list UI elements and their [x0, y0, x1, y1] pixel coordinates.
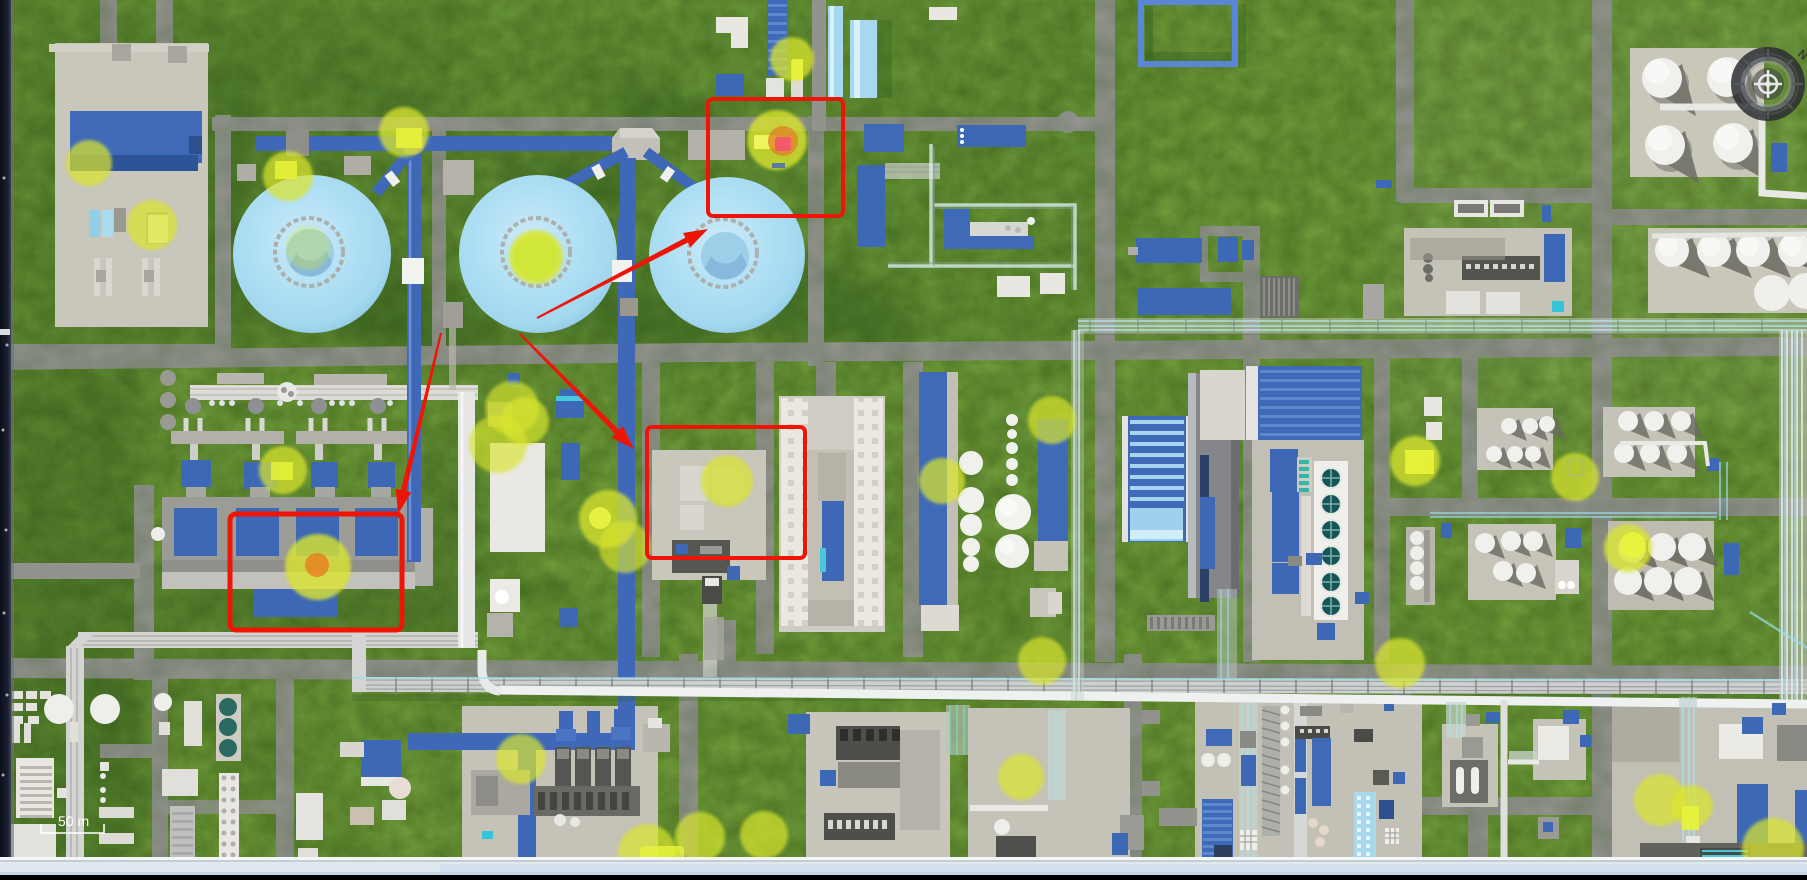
- svg-text:50 m: 50 m: [58, 813, 89, 829]
